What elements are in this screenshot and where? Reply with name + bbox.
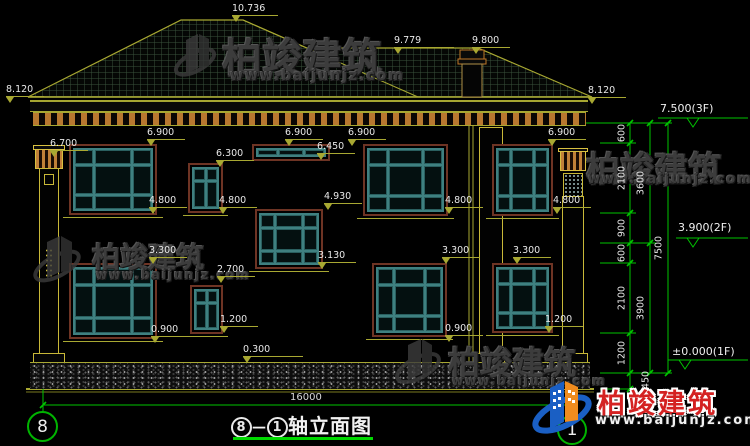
window-pane xyxy=(95,150,131,164)
window-pane xyxy=(258,150,277,155)
dim-flag-line xyxy=(548,139,586,140)
window-frame xyxy=(259,213,319,265)
vdim-floor: 3900 xyxy=(636,296,647,320)
window-pane xyxy=(426,286,441,316)
dim-flag-line xyxy=(513,257,551,258)
dim-flag-line xyxy=(216,160,254,161)
window-pane xyxy=(133,166,151,194)
dim-triangle-icon xyxy=(243,357,251,367)
window-frame xyxy=(496,148,549,212)
level-3f: 7.500(3F) xyxy=(660,102,713,115)
dim-chimney: 9.800 xyxy=(472,36,510,48)
dim-text: 4.800 xyxy=(445,195,472,206)
dim-win-bottom: 4.800 xyxy=(553,196,591,208)
dim-text: 1.200 xyxy=(545,314,572,325)
right-column-capital xyxy=(560,151,586,171)
level-2f: 3.900(2F) xyxy=(678,221,731,234)
dim-triangle-icon xyxy=(442,258,450,268)
dim-text: 8.120 xyxy=(6,84,33,95)
window-pane xyxy=(426,317,441,331)
window-pane xyxy=(512,285,534,312)
dim-triangle-icon xyxy=(588,98,596,108)
window-pane xyxy=(389,197,423,210)
vdim-segment: 1200 xyxy=(617,341,628,365)
dim-triangle-icon xyxy=(149,258,157,268)
watermark-logo-icon xyxy=(392,334,444,390)
dim-win-top: 6.900 xyxy=(548,128,586,140)
dim-triangle-icon xyxy=(147,140,155,150)
window-pane xyxy=(395,317,424,331)
dim-text: 9.779 xyxy=(394,35,421,46)
vdim-segment: 600 xyxy=(617,244,628,262)
dim-triangle-icon xyxy=(317,154,325,164)
dim-text: 3.130 xyxy=(318,250,345,261)
window-1f-small xyxy=(190,285,223,334)
dim-triangle-icon xyxy=(445,336,453,346)
window-1f-middle xyxy=(372,263,447,337)
left-column-capital xyxy=(35,149,63,169)
dim-text: 6.900 xyxy=(348,127,375,138)
dim-text: 9.800 xyxy=(472,35,499,46)
dim-win-bottom: 1.200 xyxy=(220,315,258,327)
dim-triangle-icon xyxy=(548,140,556,150)
window-pane xyxy=(208,291,218,302)
window-pane xyxy=(378,286,393,316)
dim-capital: 6.700 xyxy=(50,139,88,151)
logo-url-text: www.baijunjz.com xyxy=(595,413,750,428)
window-frame xyxy=(194,289,219,330)
dim-flag-line xyxy=(149,207,187,208)
dim-win-bottom: 4.800 xyxy=(149,196,187,208)
dim-flag-line xyxy=(243,356,303,357)
window-pane xyxy=(75,196,93,209)
window-pane xyxy=(304,229,317,251)
window-pane xyxy=(369,197,387,210)
window-pane xyxy=(389,166,423,194)
dim-win-bottom: 4.800 xyxy=(445,196,483,208)
window-sill xyxy=(63,217,163,218)
window-pane xyxy=(498,166,510,194)
window-pane xyxy=(426,269,441,284)
dim-flag-line xyxy=(318,262,356,263)
window-stair xyxy=(255,209,323,269)
dim-text: 3.300 xyxy=(442,245,469,256)
dim-win-bottom: 1.200 xyxy=(545,315,583,327)
window-pane xyxy=(512,150,534,164)
dim-win-top: 6.900 xyxy=(348,128,386,140)
window-pane xyxy=(75,166,93,194)
window-sill xyxy=(63,341,163,342)
dim-flag-line xyxy=(445,207,483,208)
dim-win-top: 4.930 xyxy=(324,192,362,204)
watermark-url: www.baijunjz.com xyxy=(230,68,405,84)
dim-flag-line xyxy=(151,336,189,337)
window-frame xyxy=(73,148,153,211)
dim-triangle-icon xyxy=(50,151,58,161)
dim-text: 3.300 xyxy=(149,245,176,256)
window-pane xyxy=(535,285,547,312)
window-pane xyxy=(261,252,274,263)
window-frame xyxy=(192,167,219,209)
dim-flag-line xyxy=(6,96,44,97)
left-column-panel xyxy=(44,174,54,185)
dim-triangle-icon xyxy=(472,48,480,58)
dim-triangle-icon xyxy=(324,204,332,214)
dim-text: 0.900 xyxy=(445,323,472,334)
watermark-logo-icon xyxy=(172,28,218,86)
window-pane xyxy=(279,150,303,155)
vdim-floor: 3600 xyxy=(636,171,647,195)
dim-triangle-icon xyxy=(220,327,228,337)
vdim-total: 7500 xyxy=(654,236,665,260)
right-column-shaft xyxy=(562,196,584,355)
dim-win-top: 3.300 xyxy=(149,246,187,258)
title-text: 轴立面图 xyxy=(288,414,372,438)
window-pane xyxy=(535,269,547,283)
dim-eave-right: 8.120 xyxy=(588,86,626,98)
dim-triangle-icon xyxy=(149,208,157,218)
dim-win-top: 6.300 xyxy=(216,149,254,161)
vdim-segment: 2100 xyxy=(617,286,628,310)
dim-text: 4.930 xyxy=(324,191,351,202)
window-pane xyxy=(304,252,317,263)
dim-text: 6.900 xyxy=(548,127,575,138)
window-pane xyxy=(207,182,218,207)
dim-flag-line xyxy=(324,203,362,204)
dim-plinth: 0.300 xyxy=(243,345,303,357)
axis-bubble-8: 8 xyxy=(27,411,58,442)
dim-eave-left: 8.120 xyxy=(6,85,44,97)
dim-flag-line xyxy=(445,335,483,336)
dim-flag-line xyxy=(149,257,187,258)
dim-triangle-icon xyxy=(232,16,240,26)
window-pane xyxy=(369,166,387,194)
dim-text: 8.120 xyxy=(588,85,615,96)
dim-flag-line xyxy=(217,276,255,277)
eave-fascia xyxy=(30,100,588,112)
window-pane xyxy=(208,304,218,328)
dim-flag-line xyxy=(147,139,185,140)
axis-number: 8 xyxy=(37,417,48,437)
elevation-drawing-canvas: 10.736 9.779 9.800 8.120 8.120 6.700 6.9… xyxy=(0,0,750,446)
window-pane xyxy=(75,286,93,317)
window-pane xyxy=(378,269,393,284)
window-1f-right xyxy=(492,263,553,333)
dim-triangle-icon xyxy=(6,97,14,107)
title-underline xyxy=(233,437,373,440)
dim-text: 3.300 xyxy=(513,245,540,256)
window-pane xyxy=(498,269,510,283)
dim-triangle-icon xyxy=(219,208,227,218)
title-axis-start: 8 xyxy=(231,417,252,438)
window-sill xyxy=(486,218,559,219)
dim-text: 10.736 xyxy=(232,3,265,14)
dim-flag-line xyxy=(285,139,323,140)
dim-text: 4.800 xyxy=(149,195,176,206)
window-frame xyxy=(496,267,549,329)
dim-win-bottom: 0.900 xyxy=(445,324,483,336)
window-2f-left xyxy=(69,144,157,215)
window-2f-middle xyxy=(363,144,448,216)
window-pane xyxy=(261,229,274,251)
dim-flag-line xyxy=(219,207,257,208)
window-2f-right xyxy=(492,144,553,216)
dim-triangle-icon xyxy=(513,258,521,268)
dim-win-top: 2.700 xyxy=(217,265,255,277)
window-pane xyxy=(196,291,206,302)
dim-flag-line xyxy=(394,47,454,48)
dim-flag-line xyxy=(232,15,278,16)
dim-text: 2.700 xyxy=(217,264,244,275)
window-pane xyxy=(535,166,547,194)
dim-triangle-icon xyxy=(445,208,453,218)
window-pane xyxy=(389,150,423,164)
window-pane xyxy=(304,215,317,227)
drawing-title: 8—1轴立面图 xyxy=(231,410,372,439)
window-pane xyxy=(133,286,151,317)
dim-ridge2: 9.779 xyxy=(394,36,454,48)
dim-text: 4.800 xyxy=(219,195,246,206)
window-pane xyxy=(194,169,205,180)
dim-triangle-icon xyxy=(348,140,356,150)
window-pane xyxy=(194,182,205,207)
dim-text: 6.700 xyxy=(50,138,77,149)
dim-overall-width: 16000 xyxy=(290,392,322,403)
dim-triangle-icon xyxy=(394,48,402,58)
dim-flag-line xyxy=(545,326,583,327)
dim-triangle-icon xyxy=(216,161,224,171)
dim-triangle-icon xyxy=(151,337,159,347)
window-frame xyxy=(367,148,444,212)
watermark-logo-icon xyxy=(30,230,84,290)
vdim-segment: 900 xyxy=(617,219,628,237)
window-pane xyxy=(512,197,534,210)
dim-flag-line xyxy=(472,47,510,48)
window-pane xyxy=(535,150,547,164)
window-pane xyxy=(498,314,510,327)
dim-text: 6.300 xyxy=(216,148,243,159)
window-pane xyxy=(395,286,424,316)
dim-win-bottom: 0.900 xyxy=(151,325,189,337)
logo-icon xyxy=(530,372,596,444)
window-pane xyxy=(512,166,534,194)
window-pane xyxy=(369,150,387,164)
window-pane xyxy=(378,317,393,331)
dim-text: 0.300 xyxy=(243,344,270,355)
window-pane xyxy=(133,150,151,164)
window-pane xyxy=(276,229,301,251)
window-pane xyxy=(95,166,131,194)
dim-text: 4.800 xyxy=(553,195,580,206)
window-sill xyxy=(249,271,329,272)
vdim-segment: 600 xyxy=(617,124,628,142)
vdim-segment: 2100 xyxy=(617,166,628,190)
dim-win-top: 3.300 xyxy=(513,246,551,258)
watermark-url: www.baijunjz.com xyxy=(588,172,750,187)
window-pane xyxy=(424,197,442,210)
window-pane xyxy=(395,269,424,284)
window-pane xyxy=(261,215,274,227)
dim-text: 6.450 xyxy=(317,141,344,152)
window-pane xyxy=(276,215,301,227)
dim-flag-line xyxy=(588,97,626,98)
title-dash: — xyxy=(252,420,267,436)
dim-triangle-icon xyxy=(318,263,326,273)
window-pane xyxy=(512,269,534,283)
window-pane xyxy=(95,286,131,317)
dim-win-top: 6.900 xyxy=(285,128,323,140)
title-axis-end: 1 xyxy=(267,417,288,438)
dim-flag-line xyxy=(317,153,355,154)
dim-flag-line xyxy=(348,139,386,140)
dim-text: 0.900 xyxy=(151,324,178,335)
window-pane xyxy=(424,150,442,164)
dim-win-bottom: 3.130 xyxy=(318,251,356,263)
dim-text: 6.900 xyxy=(285,127,312,138)
window-pane xyxy=(535,197,547,210)
window-pane xyxy=(276,252,301,263)
window-pane xyxy=(95,196,131,209)
window-pane xyxy=(498,150,510,164)
dim-triangle-icon xyxy=(545,327,553,337)
dim-flag-line xyxy=(220,326,258,327)
dim-triangle-icon xyxy=(285,140,293,150)
dim-flag-line xyxy=(50,150,88,151)
dim-triangle-icon xyxy=(217,277,225,287)
right-column-lattice-panel xyxy=(563,173,583,197)
window-pane xyxy=(133,319,151,333)
dim-ridge: 10.736 xyxy=(232,4,278,16)
window-pane xyxy=(75,150,93,164)
window-pane xyxy=(75,319,93,333)
window-pane xyxy=(498,285,510,312)
dim-triangle-icon xyxy=(553,208,561,218)
dim-text: 6.900 xyxy=(147,127,174,138)
dim-text: 1.200 xyxy=(220,314,247,325)
dim-flag-line xyxy=(553,207,591,208)
window-sill xyxy=(357,218,454,219)
window-pane xyxy=(95,319,131,333)
window-pane xyxy=(512,314,534,327)
level-1f: ±0.000(1F) xyxy=(672,345,735,358)
dim-win-top: 3.300 xyxy=(442,246,480,258)
dim-win-bottom: 4.800 xyxy=(219,196,257,208)
window-pane xyxy=(196,304,206,328)
window-frame xyxy=(376,267,443,333)
eave-dentil-band xyxy=(33,112,586,126)
window-pane xyxy=(498,197,510,210)
window-pane xyxy=(424,166,442,194)
dim-flag-line xyxy=(442,257,480,258)
dim-win-top: 6.900 xyxy=(147,128,185,140)
